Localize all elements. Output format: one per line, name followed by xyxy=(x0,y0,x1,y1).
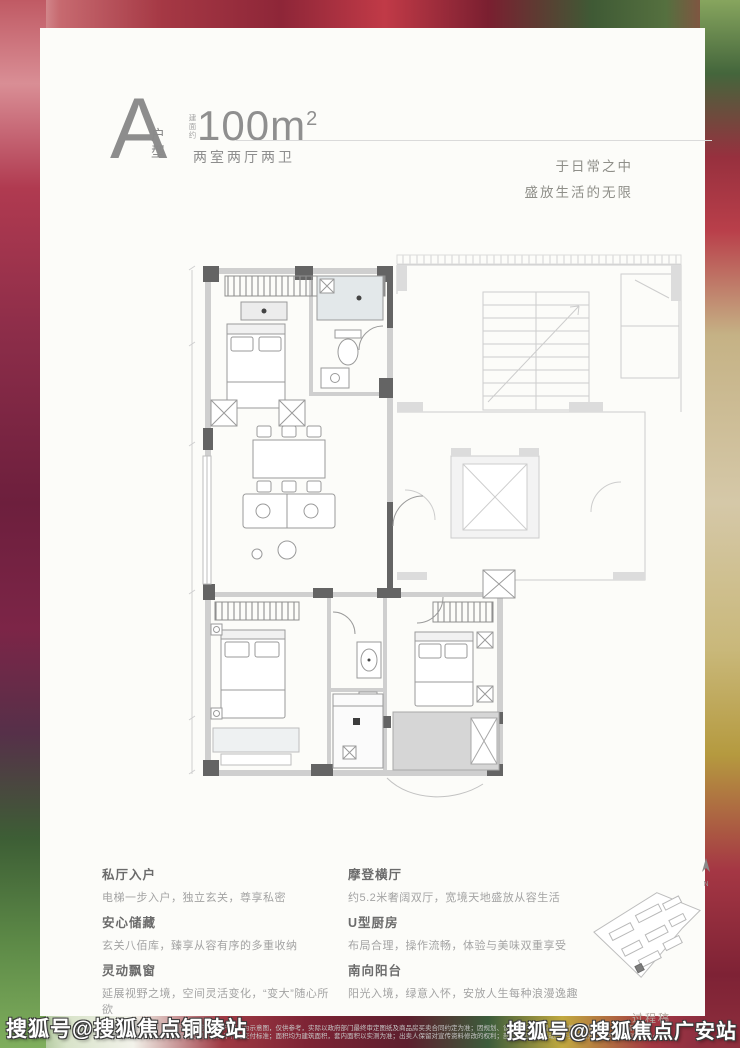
feature-title: 摩登横厅 xyxy=(348,864,586,883)
background-top-strip xyxy=(0,0,740,30)
feature-south-balcony: 南向阳台 阳光入境，绿意入怀，安放人生每种浪漫逸趣 xyxy=(348,960,586,1001)
floorplan-card: A 户型 建面约 100m2 两室两厅两卫 于日常之中 盛放生活的无限 xyxy=(40,28,705,1016)
dimension-chain xyxy=(189,266,195,774)
feature-u-kitchen: U型厨房 布局合理，操作流畅，体验与美味双重享受 xyxy=(348,912,586,953)
dining-area xyxy=(253,426,325,492)
radiator-hatch xyxy=(215,602,299,620)
background-right-strip xyxy=(700,0,740,1048)
toilet-tank xyxy=(335,330,361,338)
north-compass-icon xyxy=(697,857,715,875)
feature-desc: 约5.2米奢阔双厅，宽境天地盛放从容生活 xyxy=(348,889,586,905)
tagline-line2: 盛放生活的无限 xyxy=(525,180,634,206)
feature-private-entry: 私厅入户 电梯一步入户，独立玄关，尊享私密 xyxy=(102,864,340,905)
bed xyxy=(415,632,473,706)
bath2-door-arc xyxy=(333,612,355,634)
header-divider xyxy=(236,140,712,141)
unit-type-label: 户型 xyxy=(151,127,167,161)
feature-title: 南向阳台 xyxy=(348,960,586,979)
feature-title: U型厨房 xyxy=(348,912,586,931)
feature-desc: 电梯一步入户，独立玄关，尊享私密 xyxy=(102,889,340,905)
balcony xyxy=(393,712,499,770)
watermark-bottom-right: 搜狐号@搜狐焦点广安站 xyxy=(506,1015,737,1044)
feature-bay-window: 灵动飘窗 延展视野之境，空间灵活变化，“变大”随心所欲 xyxy=(102,960,340,1017)
bedroom-3 xyxy=(415,597,493,706)
master-bathroom xyxy=(317,276,383,388)
feature-title: 灵动飘窗 xyxy=(102,960,340,979)
west-window xyxy=(203,456,211,584)
toilet xyxy=(338,339,358,365)
feature-desc: 布局合理，操作流畅，体验与美味双重享受 xyxy=(348,937,586,953)
site-plan-minimap xyxy=(588,884,706,984)
watermark-bottom-left: 搜狐号@搜狐焦点铜陵站 xyxy=(6,1013,247,1043)
entry-door-arc xyxy=(393,496,423,526)
tagline: 于日常之中 盛放生活的无限 xyxy=(525,154,634,206)
tagline-line1: 于日常之中 xyxy=(525,154,634,180)
feature-desc: 玄关八佰库，臻享从容有序的多重收纳 xyxy=(102,937,340,953)
coffee-table xyxy=(278,541,296,559)
dining-table xyxy=(253,440,325,478)
feature-title: 安心储藏 xyxy=(102,912,340,931)
lower-bay-curve xyxy=(387,778,483,797)
feature-modern-hall: 摩登横厅 约5.2米奢阔双厅，宽境天地盛放从容生活 xyxy=(348,864,586,905)
plant xyxy=(252,549,262,559)
feature-title: 私厅入户 xyxy=(102,864,340,883)
core-ghost xyxy=(397,255,681,580)
elevator-ghost xyxy=(451,456,539,538)
floor-plan-svg xyxy=(183,250,703,830)
feature-desc: 阳光入境，绿意入怀，安放人生每种浪漫逸趣 xyxy=(348,985,586,1001)
bedroom-2 xyxy=(211,602,299,765)
feature-storage: 安心储藏 玄关八佰库，臻享从容有序的多重收纳 xyxy=(102,912,340,953)
bath-door-arc xyxy=(359,326,383,350)
bay-window xyxy=(213,728,299,752)
rooms-label: 两室两厅两卫 xyxy=(193,147,295,167)
staircase-ghost xyxy=(483,292,589,410)
